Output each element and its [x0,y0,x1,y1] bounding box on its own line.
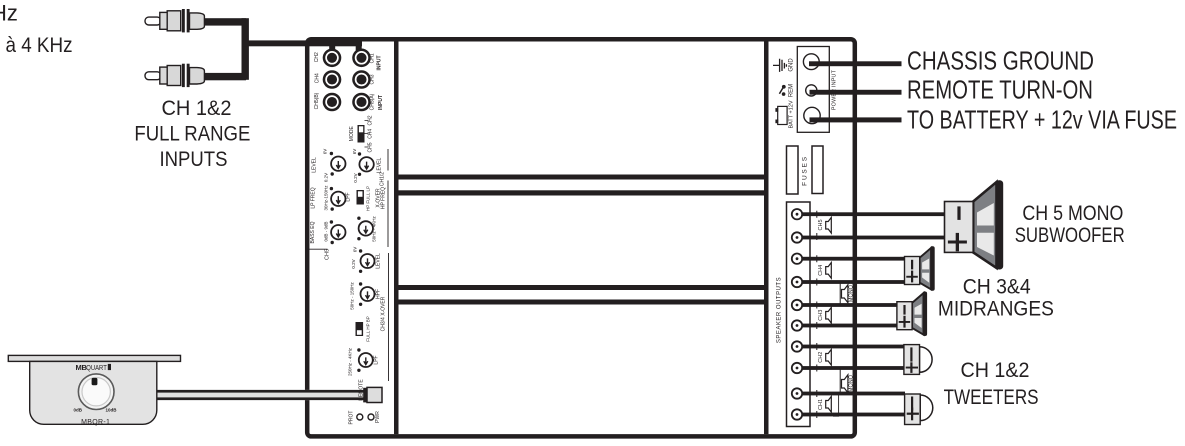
svg-text:BASS EQ: BASS EQ [310,221,316,243]
svg-text:0.2V: 0.2V [324,173,329,182]
svg-text:CH1: CH1 [370,53,376,63]
svg-text:MONO: MONO [849,374,855,392]
svg-text:POWER INPUT: POWER INPUT [832,69,838,110]
svg-text:CH5: CH5 [325,249,331,260]
svg-text:REM: REM [789,84,795,97]
svg-text:FUSES: FUSES [802,155,809,186]
svg-text:SUBWOOFER: SUBWOOFER [1015,223,1125,247]
svg-text:CH1: CH1 [818,399,824,410]
svg-text:REMOTE TURN-ON: REMOTE TURN-ON [907,75,1093,105]
svg-text:6V: 6V [323,149,328,155]
svg-text:CH5: CH5 [818,219,824,230]
svg-text:CHASSIS GROUND: CHASSIS GROUND [907,46,1094,76]
svg-text:LEVEL: LEVEL [376,253,382,269]
svg-text:CH 1&2: CH 1&2 [162,96,232,120]
svg-text:CH3/4 X-OVER: CH3/4 X-OVER [381,296,387,331]
svg-text:CH 3&4: CH 3&4 [963,274,1031,298]
svg-text:CH2: CH2 [818,352,824,363]
svg-text:6V: 6V [353,247,358,253]
svg-text:GND: GND [789,58,795,72]
svg-text:0dB: 0dB [74,407,83,412]
svg-text:CH5(B): CH5(B) [314,92,320,109]
svg-text:BATT +12V: BATT +12V [788,100,794,128]
svg-text:QUART: QUART [86,363,107,372]
svg-text:INPUT: INPUT [377,56,383,71]
svg-text:30Hz-150Hz: 30Hz-150Hz [324,185,329,211]
svg-text:FULL HP BP: FULL HP BP [366,316,371,342]
svg-text:MONO: MONO [849,284,855,302]
svg-text:PWR: PWR [375,411,381,423]
svg-text:FULL RANGE: FULL RANGE [134,122,250,146]
svg-text:INPUTS: INPUTS [160,147,228,171]
svg-text:CH4: CH4 [818,265,824,276]
svg-text:CH5(A): CH5(A) [370,93,376,110]
svg-text:CH 1&2: CH 1&2 [961,358,1030,382]
svg-text:LPF: LPF [346,192,352,201]
svg-text:INPUT: INPUT [378,95,384,110]
svg-text:0.2V: 0.2V [353,173,358,182]
svg-text:LEVEL: LEVEL [312,157,318,173]
svg-text:HP FULL LP: HP FULL LP [366,186,371,211]
svg-text:LP FREQ: LP FREQ [311,187,317,208]
svg-text:HP FREQ: HP FREQ [381,187,387,209]
svg-text:CH3: CH3 [818,310,824,321]
svg-text:250Hz - 4KHz: 250Hz - 4KHz [348,347,353,376]
svg-text:MBQR-1: MBQR-1 [81,419,110,426]
svg-text:Hz: Hz [0,0,18,25]
svg-text:50Hz - 150Hz: 50Hz - 150Hz [350,281,355,309]
svg-text:50Hz - 4KHz: 50Hz - 4KHz [372,215,377,241]
svg-text:SPEAKER OUTPUTS: SPEAKER OUTPUTS [777,277,783,343]
svg-text:à 4 KHz: à 4 KHz [6,33,73,57]
svg-text:CH3: CH3 [370,74,376,84]
svg-text:LEVEL: LEVEL [377,158,383,174]
svg-text:MODE: MODE [349,126,355,142]
svg-text:CH 5 MONO: CH 5 MONO [1022,201,1123,225]
svg-text:CH1/2: CH1/2 [380,172,386,186]
svg-text:0.2V: 0.2V [351,259,356,268]
svg-text:0dB - 9dB: 0dB - 9dB [324,221,329,241]
svg-text:CH4: CH4 [315,73,321,83]
svg-text:LPF: LPF [374,355,380,364]
svg-text:PROT: PROT [349,411,355,425]
svg-text:CH2: CH2 [314,52,320,62]
svg-text:MIDRANGES: MIDRANGES [938,297,1054,321]
svg-text:6V: 6V [352,149,357,155]
svg-text:TO BATTERY + 12v VIA FUSE: TO BATTERY + 12v VIA FUSE [907,105,1177,135]
svg-text:REMOTE: REMOTE [359,379,365,401]
svg-text:10dB: 10dB [105,407,117,412]
svg-text:TWEETERS: TWEETERS [944,385,1039,409]
svg-text:CH5: CH5 [368,142,374,152]
svg-text:CH2: CH2 [368,115,374,125]
svg-text:CH4: CH4 [368,129,374,139]
